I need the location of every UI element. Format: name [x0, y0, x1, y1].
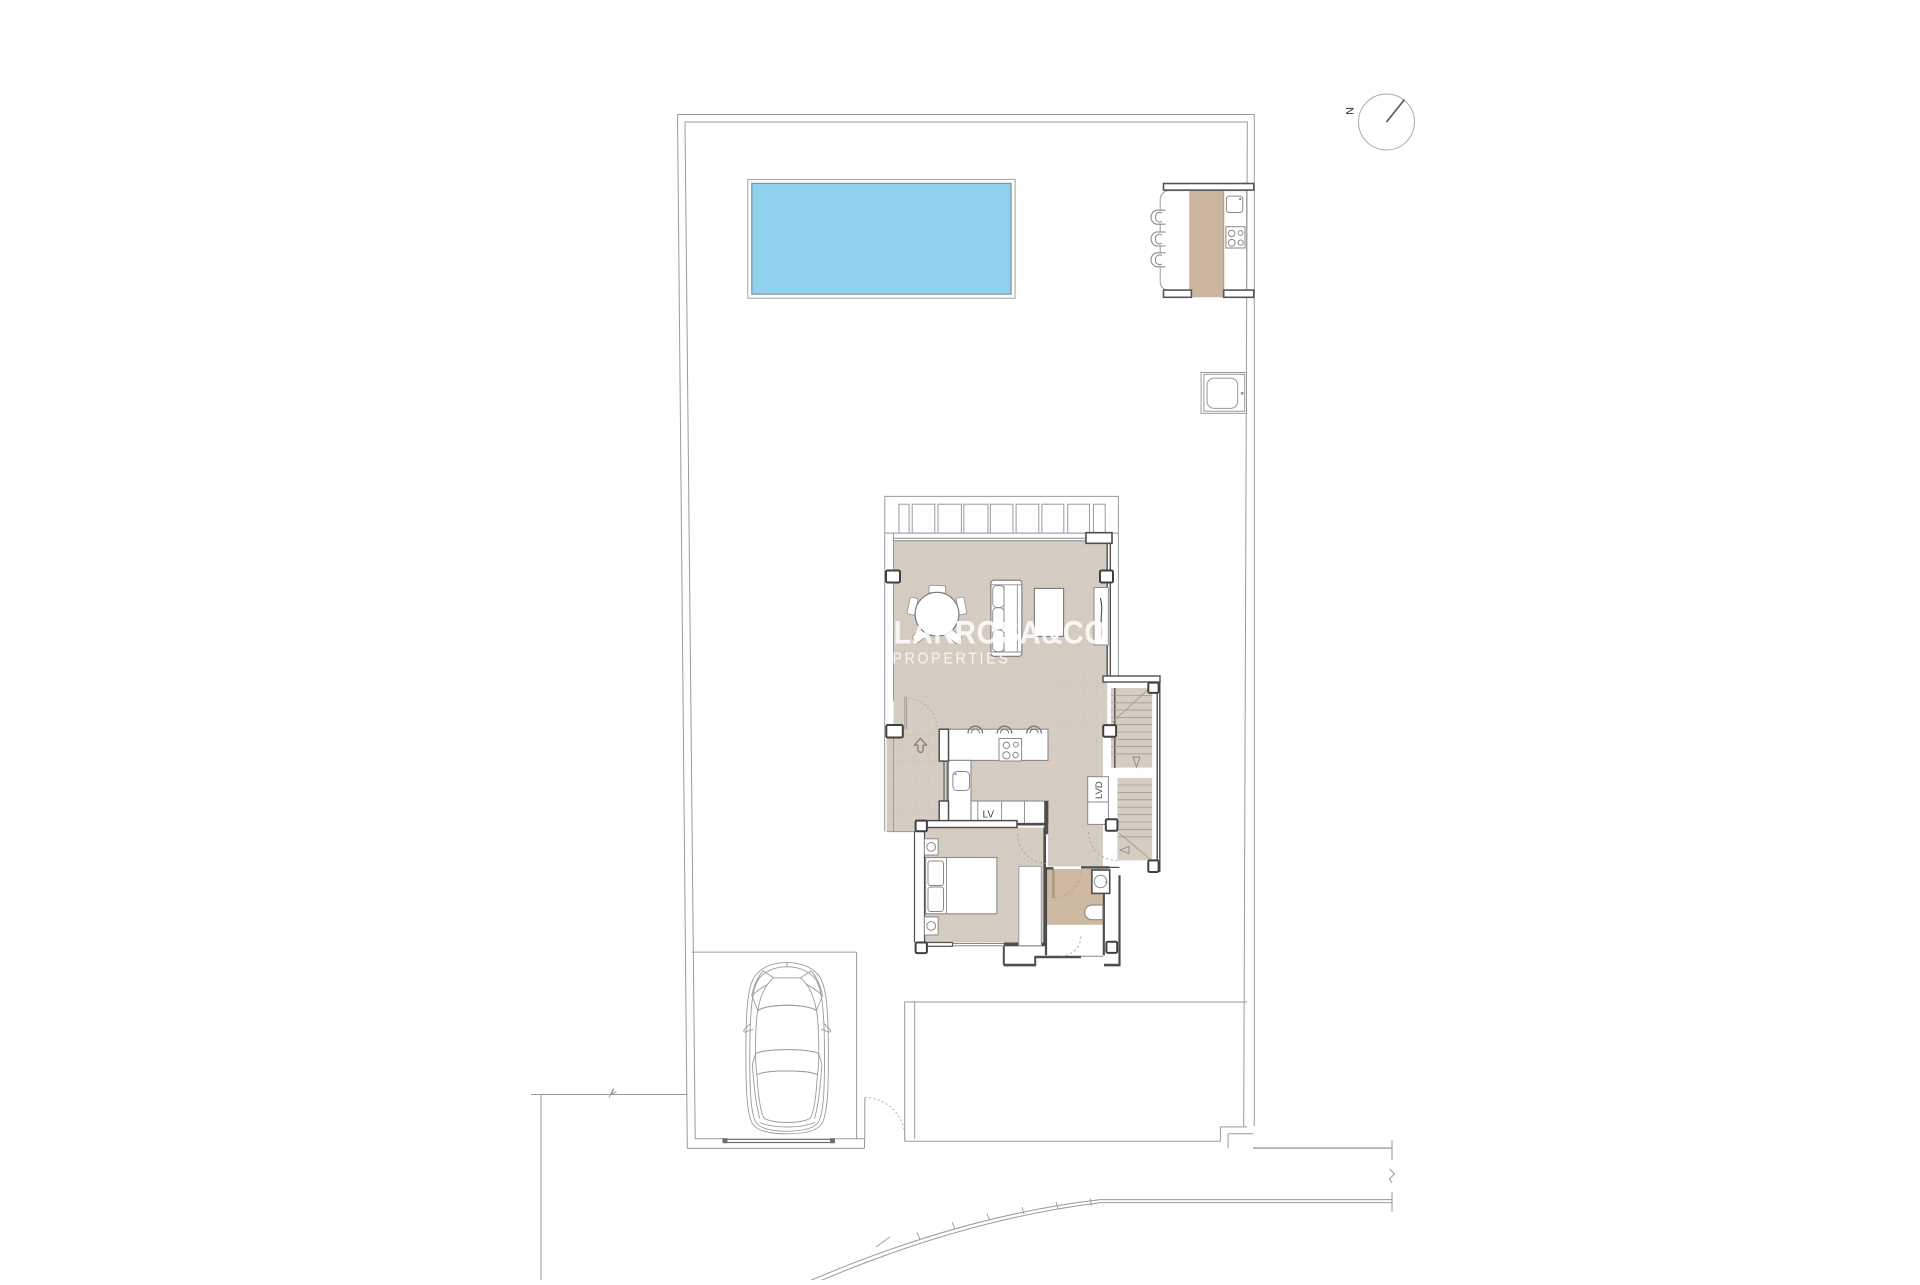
svg-text:PROPERTIES: PROPERTIES [893, 650, 1011, 667]
svg-text:N: N [1343, 107, 1355, 115]
svg-text:LARROSA&CO: LARROSA&CO [894, 615, 1108, 651]
svg-text:LVD: LVD [1094, 781, 1105, 799]
svg-text:LV: LV [983, 810, 995, 821]
